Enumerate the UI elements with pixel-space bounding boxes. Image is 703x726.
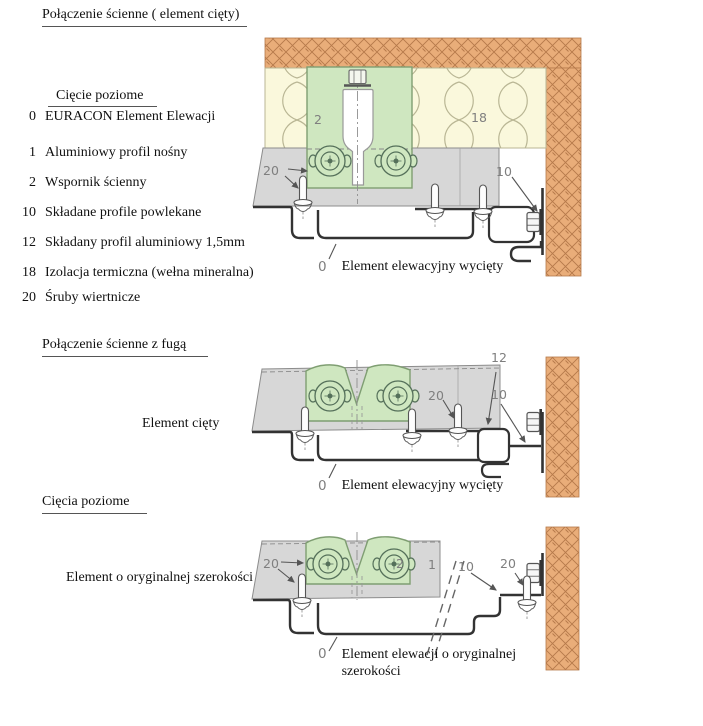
legend-item-number: 2 [20, 175, 36, 191]
label-coated-profile: 10 [458, 559, 474, 574]
caption-bottom: 0 Element elewacji o oryginalnej szeroko… [318, 646, 516, 680]
legend-item-number: 0 [20, 109, 36, 125]
section-heading-text: Cięcia poziome [42, 494, 147, 514]
caption-number: 0 [318, 259, 327, 275]
label-drill-screws: 20 [263, 163, 279, 178]
caption-top: 0 Element elewacyjny wycięty [318, 259, 503, 275]
section-heading-joint: Połączenie ścienne z fugą [42, 337, 208, 353]
page-title-text: Połączenie ścienne ( element cięty) [42, 7, 247, 27]
page-title: Połączenie ścienne ( element cięty) [42, 7, 247, 23]
legend-item-label: Śruby wiertnicze [45, 290, 140, 306]
label-drill-screws: 20 [263, 556, 279, 571]
legend-item-label: Składany profil aluminiowy 1,5mm [45, 235, 245, 251]
legend-heading-text: Cięcie poziome [48, 88, 157, 107]
label-folded-alu-profile: 12 [491, 350, 507, 365]
legend-item-number: 20 [20, 290, 36, 306]
caption-number: 0 [318, 646, 327, 680]
section-heading-text: Połączenie ścienne z fugą [42, 337, 208, 357]
side-label-original-width: Element o oryginalnej szerokości [66, 570, 253, 586]
legend-item-number: 18 [20, 265, 36, 281]
legend-item-label: EURACON Element Elewacji [45, 109, 215, 125]
caption-line-2: szerokości [342, 663, 517, 680]
legend-item-10: 10 Składane profile powlekane [20, 205, 201, 221]
legend-item-label: Aluminiowy profil nośny [45, 145, 187, 161]
legend-item-label: Izolacja termiczna (wełna mineralna) [45, 265, 254, 281]
caption-text: Element elewacyjny wycięty [342, 259, 504, 275]
legend-item-label: Wspornik ścienny [45, 175, 146, 191]
legend-item-number: 12 [20, 235, 36, 251]
label-drill-screws: 20 [500, 556, 516, 571]
label-wall-bracket: 2 [396, 556, 404, 571]
label-wall-bracket: 2 [314, 112, 322, 127]
label-drill-screws: 20 [428, 388, 444, 403]
legend-item-label: Składane profile powlekane [45, 205, 201, 221]
legend-item-18: 18 Izolacja termiczna (wełna mineralna) [20, 265, 254, 281]
caption-middle: 0 Element elewacyjny wycięty [318, 478, 503, 494]
label-coated-profile: 10 [496, 164, 512, 179]
legend-heading: Cięcie poziome [48, 88, 157, 104]
diagram-page: Połączenie ścienne ( element cięty) Cięc… [0, 0, 703, 726]
section-heading-horizontal-cuts: Cięcia poziome [42, 494, 147, 510]
label-insulation: 18 [471, 110, 487, 125]
legend-item-20: 20 Śruby wiertnicze [20, 290, 140, 306]
side-label-cut-element: Element cięty [142, 416, 219, 432]
legend-item-12: 12 Składany profil aluminiowy 1,5mm [20, 235, 245, 251]
caption-line-1: Element elewacji o oryginalnej [342, 646, 517, 663]
legend-item-1: 1 Aluminiowy profil nośny [20, 145, 187, 161]
label-support-profile: 1 [428, 557, 436, 572]
legend-item-number: 10 [20, 205, 36, 221]
label-coated-profile: 10 [491, 387, 507, 402]
caption-text: Element elewacji o oryginalnej szerokośc… [342, 646, 517, 680]
legend-item-number: 1 [20, 145, 36, 161]
legend-item-2: 2 Wspornik ścienny [20, 175, 146, 191]
legend-item-0: 0 EURACON Element Elewacji [20, 109, 215, 125]
caption-text: Element elewacyjny wycięty [342, 478, 504, 494]
drawing-wall-connection-cut-element [253, 38, 581, 276]
caption-number: 0 [318, 478, 327, 494]
drawing-wall-connection-with-joint [252, 357, 579, 497]
